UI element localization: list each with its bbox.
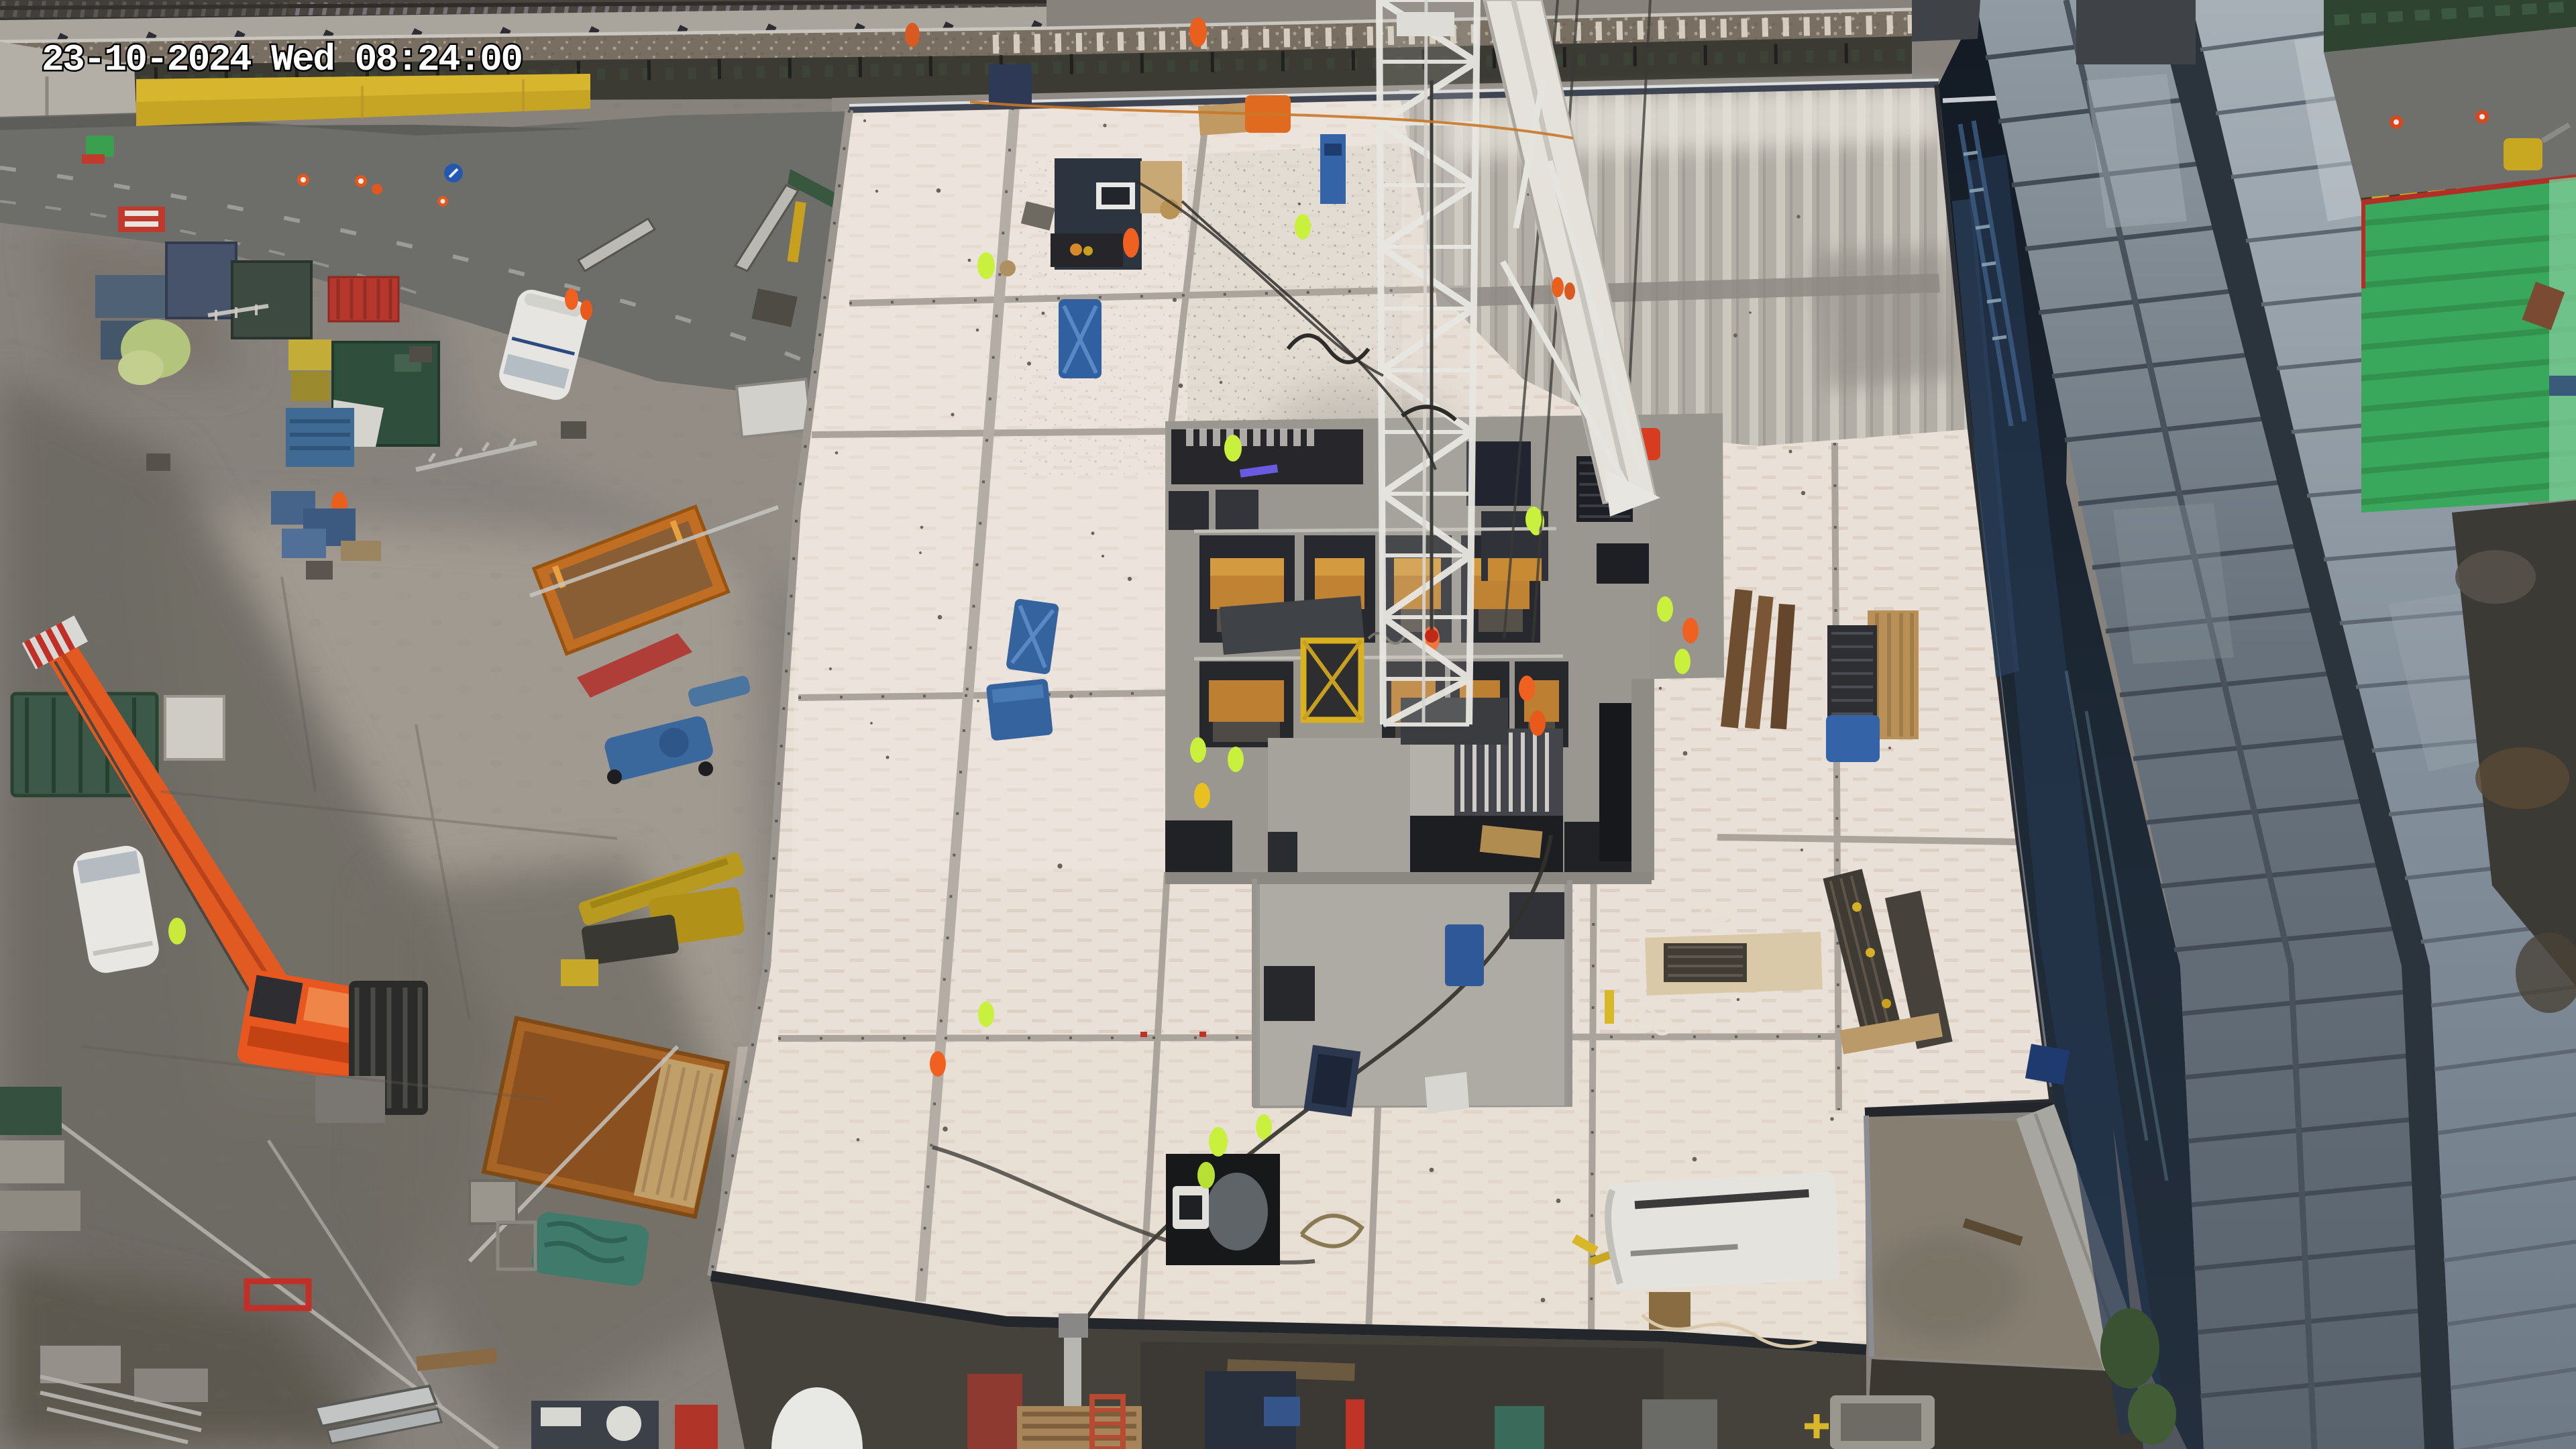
svg-text:23-10-2024 Wed 08:24:00: 23-10-2024 Wed 08:24:00 [42,38,521,81]
